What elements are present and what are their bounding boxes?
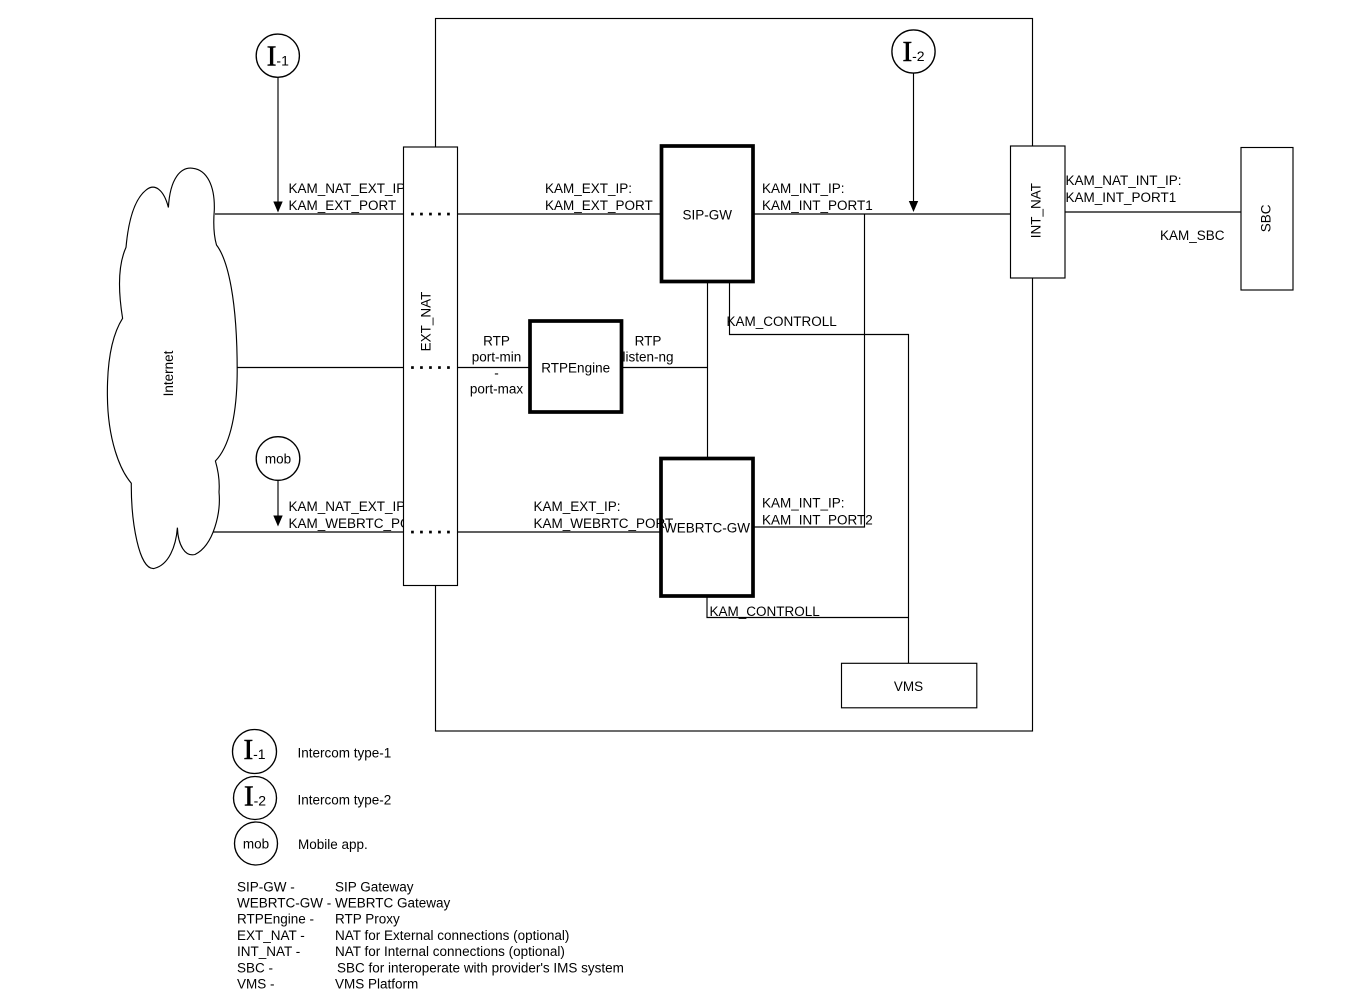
svg-text:SIP-GW: SIP-GW — [682, 208, 732, 223]
svg-text:SIP-GW -: SIP-GW - — [237, 879, 295, 894]
svg-text:mob: mob — [243, 837, 269, 852]
svg-text:Internet: Internet — [161, 350, 176, 396]
svg-text:INT_NAT -: INT_NAT - — [237, 944, 300, 959]
svg-text:VMS: VMS — [894, 679, 923, 694]
svg-text:KAM_WEBRTC_PORT: KAM_WEBRTC_PORT — [534, 516, 674, 531]
svg-text:NAT for Internal connections (: NAT for Internal connections (optional) — [335, 944, 565, 959]
svg-text:Mobile app.: Mobile app. — [298, 837, 368, 852]
svg-text:INT_NAT: INT_NAT — [1028, 183, 1043, 238]
svg-text:EXT_NAT: EXT_NAT — [419, 292, 434, 352]
svg-text:RTPEngine -: RTPEngine - — [237, 912, 314, 927]
svg-text:KAM_NAT_INT_IP:: KAM_NAT_INT_IP: — [1066, 173, 1182, 188]
svg-text:KAM_INT_PORT1: KAM_INT_PORT1 — [762, 198, 873, 213]
svg-text:NAT for External connections (: NAT for External connections (optional) — [335, 928, 569, 943]
svg-text:SIP Gateway: SIP Gateway — [335, 879, 414, 894]
svg-text:RTPEngine: RTPEngine — [541, 361, 610, 376]
svg-text:KAM_NAT_EXT_IP:: KAM_NAT_EXT_IP: — [289, 499, 410, 514]
svg-text:KAM_EXT_IP:: KAM_EXT_IP: — [534, 499, 621, 514]
svg-text:KAM_EXT_IP:: KAM_EXT_IP: — [545, 181, 632, 196]
svg-text:SBC: SBC — [1258, 204, 1273, 232]
svg-text:RTP: RTP — [483, 334, 510, 349]
svg-text:Intercom type-2: Intercom type-2 — [298, 793, 392, 808]
svg-text:KAM_CONTROLL: KAM_CONTROLL — [710, 604, 821, 619]
svg-text:WEBRTC-GW: WEBRTC-GW — [664, 521, 750, 536]
svg-text:KAM_INT_PORT2: KAM_INT_PORT2 — [762, 513, 873, 528]
svg-text:listen-ng: listen-ng — [622, 350, 673, 365]
svg-text:mob: mob — [265, 452, 291, 467]
svg-text:KAM_EXT_PORT: KAM_EXT_PORT — [289, 198, 397, 213]
svg-text:KAM_CONTROLL: KAM_CONTROLL — [727, 314, 838, 329]
svg-text:port-max: port-max — [470, 382, 524, 397]
svg-text:SBC for interoperate with prov: SBC for interoperate with provider's IMS… — [337, 960, 624, 975]
svg-text:Intercom type-1: Intercom type-1 — [298, 746, 392, 761]
svg-text:WEBRTC Gateway: WEBRTC Gateway — [335, 896, 451, 911]
svg-text:KAM_SBC: KAM_SBC — [1160, 228, 1225, 243]
svg-text:VMS -: VMS - — [237, 977, 275, 992]
svg-text:KAM_EXT_PORT: KAM_EXT_PORT — [545, 198, 653, 213]
svg-text:EXT_NAT -: EXT_NAT - — [237, 928, 305, 943]
svg-text:port-min: port-min — [472, 350, 522, 365]
svg-text:WEBRTC-GW -: WEBRTC-GW - — [237, 896, 331, 911]
svg-text:KAM_INT_IP:: KAM_INT_IP: — [762, 181, 845, 196]
svg-text:-: - — [494, 366, 499, 381]
svg-text:KAM_INT_PORT1: KAM_INT_PORT1 — [1066, 190, 1177, 205]
svg-text:RTP: RTP — [635, 334, 662, 349]
svg-text:RTP Proxy: RTP Proxy — [335, 912, 400, 927]
svg-text:KAM_INT_IP:: KAM_INT_IP: — [762, 496, 845, 511]
svg-text:VMS Platform: VMS Platform — [335, 977, 418, 992]
svg-text:KAM_NAT_EXT_IP:: KAM_NAT_EXT_IP: — [289, 181, 410, 196]
svg-text:SBC -: SBC - — [237, 960, 273, 975]
